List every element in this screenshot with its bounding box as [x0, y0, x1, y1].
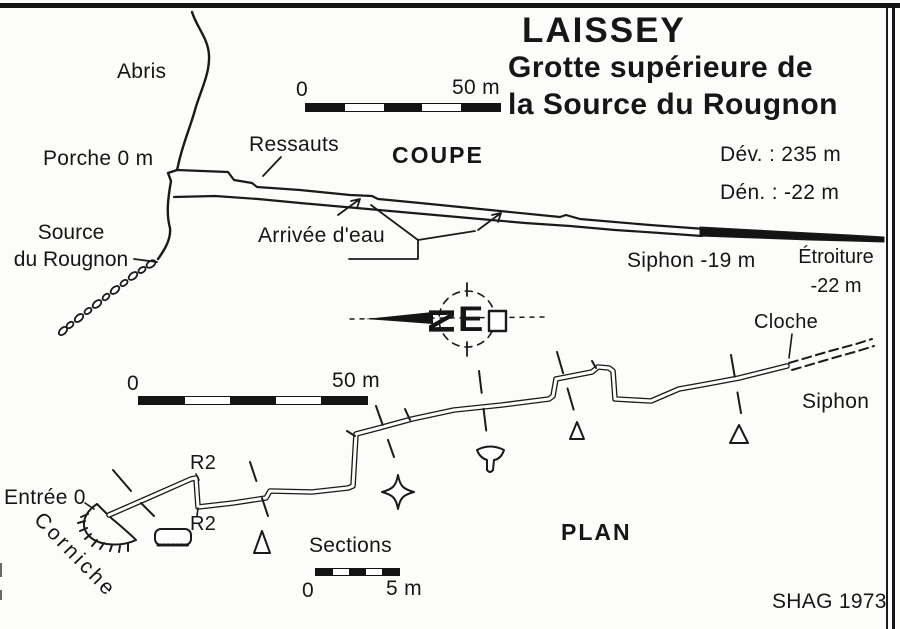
- development-stat: Dév. : 235 m: [720, 143, 841, 167]
- coupe-scale-bar: [305, 103, 501, 112]
- section-symbol-triangle-3: [730, 425, 748, 443]
- plan-passage-drawing: [109, 339, 874, 515]
- sections-scale-max: 5 m: [386, 577, 422, 601]
- title-line-3: la Source du Rougnon: [508, 86, 900, 123]
- r2-upper-label: R2: [190, 452, 216, 475]
- plan-scale-zero: 0: [127, 372, 139, 396]
- ressauts-label: Ressauts: [249, 133, 339, 157]
- r2-lower-label: R2: [190, 513, 216, 536]
- map-title: LAISSEY Grotte supérieure de la Source d…: [508, 12, 900, 123]
- sections-scale-bar: [315, 568, 400, 576]
- coupe-scale-zero: 0: [296, 78, 308, 102]
- credit: SHAG 1973: [772, 590, 887, 614]
- section-symbol-rect: [155, 529, 191, 545]
- cloche-leader: [789, 334, 792, 358]
- entree-label: Entrée 0: [4, 486, 86, 510]
- section-symbol-mushroom: [477, 447, 504, 473]
- coupe-cliff-drawing: [158, 12, 209, 259]
- water-inlet-arrow-2: [478, 213, 501, 230]
- etroiture-label: Étroiture -22 m: [786, 243, 886, 301]
- plan-cross-section-symbols: [155, 422, 748, 553]
- section-symbol-triangle-1: [254, 531, 270, 553]
- compass-letter-n: N: [420, 308, 462, 334]
- sections-label: Sections: [309, 534, 392, 558]
- plan-section-ticks: [113, 334, 792, 516]
- denivelation-stat: Dén. : -22 m: [720, 181, 839, 205]
- scan-edge-mark: [0, 590, 2, 600]
- cloche-label: Cloche: [754, 311, 818, 334]
- sections-scale-zero: 0: [302, 579, 314, 603]
- title-line-1: LAISSEY: [508, 12, 900, 49]
- plan-heading: PLAN: [561, 519, 632, 546]
- plan-siphon-label: Siphon: [802, 390, 869, 414]
- porche-label: Porche 0 m: [43, 147, 153, 171]
- coupe-heading: COUPE: [392, 142, 484, 169]
- abris-label: Abris: [117, 60, 166, 84]
- frame-top-border: [0, 3, 900, 8]
- compass-letter-e: E: [458, 301, 483, 341]
- section-symbol-triangle-2: [570, 422, 584, 439]
- plan-scale-max: 50 m: [332, 369, 380, 393]
- cave-survey-sheet: LAISSEY Grotte supérieure de la Source d…: [0, 0, 900, 629]
- section-symbol-star: [382, 475, 414, 509]
- plan-entrance-funnel-drawing: [78, 503, 136, 552]
- scan-edge-mark: [0, 563, 2, 577]
- siphon-depth-label: Siphon -19 m: [627, 249, 756, 273]
- title-line-2: Grotte supérieure de: [508, 49, 900, 86]
- coupe-scale-max: 50 m: [452, 76, 500, 100]
- plan-scale-bar: [138, 396, 368, 405]
- arrivee-eau-label: Arrivée d'eau: [258, 224, 385, 248]
- source-du-rougnon-label: Source du Rougnon: [6, 219, 136, 273]
